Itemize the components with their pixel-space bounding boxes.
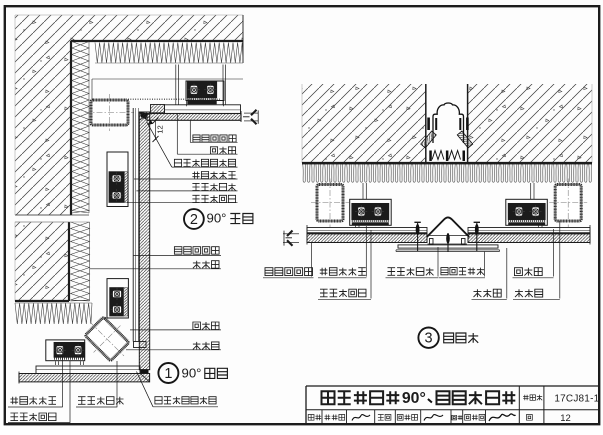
svg-text:3: 3 — [425, 331, 433, 347]
svg-text:12: 12 — [560, 413, 571, 424]
svg-text:90°: 90° — [207, 211, 227, 226]
svg-text:17CJ81-1: 17CJ81-1 — [554, 394, 599, 405]
svg-text:90°: 90° — [402, 390, 426, 407]
svg-text:2: 2 — [190, 212, 198, 228]
svg-text:12: 12 — [155, 125, 164, 133]
svg-text:90°: 90° — [182, 366, 202, 381]
svg-text:1: 1 — [164, 366, 172, 382]
